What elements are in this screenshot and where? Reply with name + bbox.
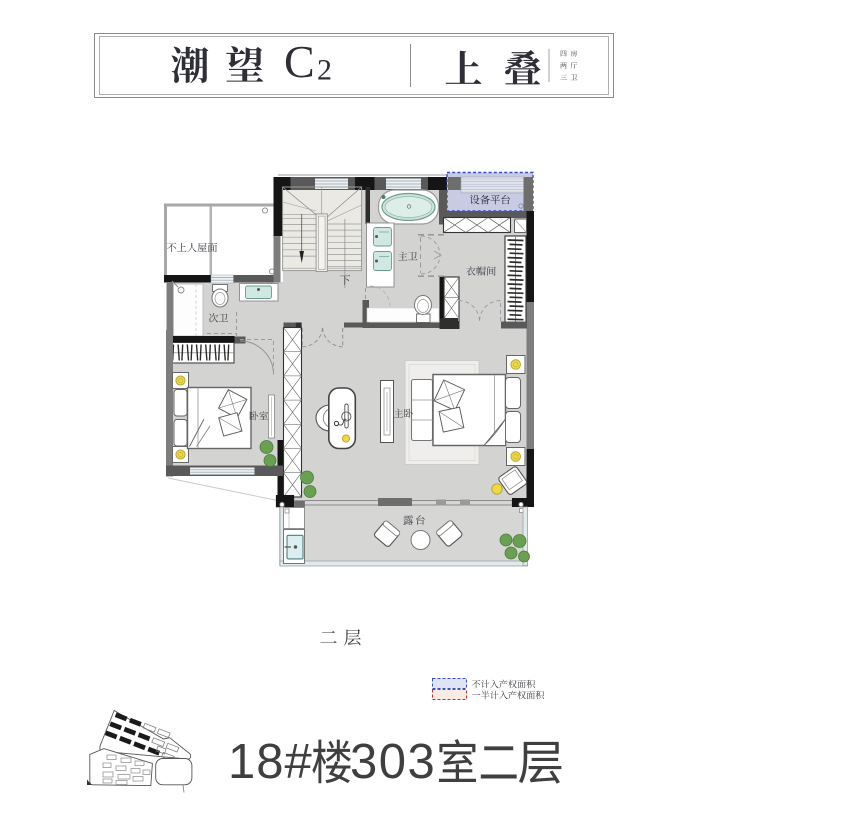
svg-text:2: 2 (317, 54, 332, 87)
svg-text:303: 303 (350, 735, 436, 789)
svg-text:C: C (284, 36, 315, 87)
svg-text:18#: 18# (228, 735, 313, 789)
